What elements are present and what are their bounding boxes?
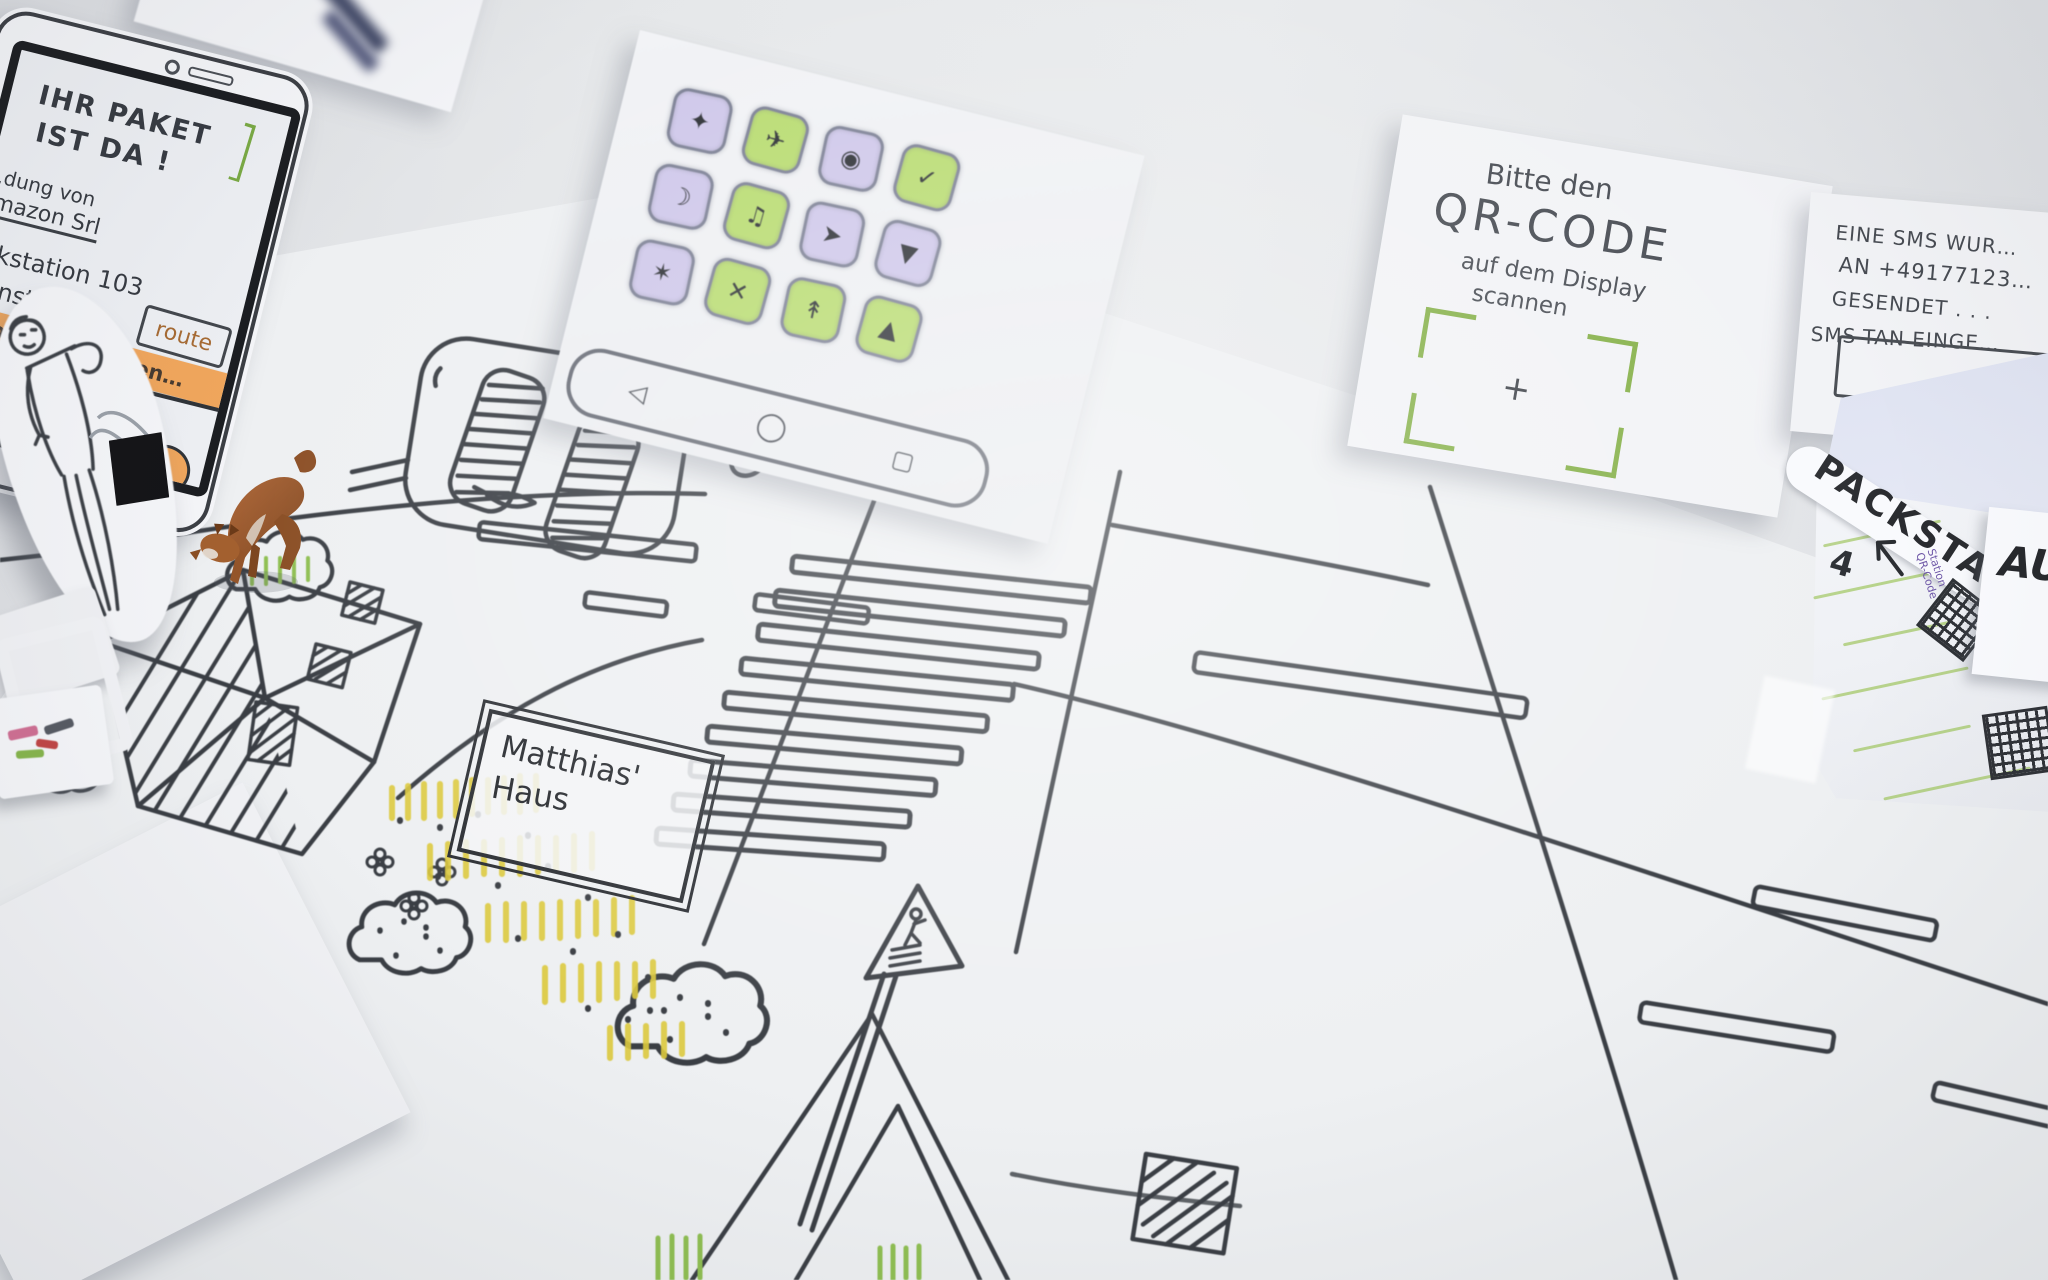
- recents-icon: ▢: [889, 444, 918, 477]
- app-icon: ▼: [871, 217, 945, 291]
- app-icon: ▲: [852, 292, 926, 366]
- app-icon-glyph: ✈: [762, 124, 789, 156]
- arrow-icon: [1859, 531, 1915, 584]
- app-icon-glyph: ✦: [687, 105, 712, 137]
- app-icon: ↟: [778, 275, 849, 346]
- app-icon-glyph: ◉: [838, 143, 864, 175]
- crosshair-mark: +: [1499, 367, 1534, 411]
- paper-basket: [0, 600, 122, 800]
- table-surface: ✦ ✈ ◉ ✓ ☽ ♫ ➤ ▼ ✶ ✕ ↟ ▲ ◁ ◯ ▢ IHR PAKET …: [0, 0, 2048, 1280]
- route-button-label: route: [153, 316, 216, 356]
- green-bracket-mark: ]: [219, 110, 266, 191]
- output-label-text: AU…: [1997, 536, 2048, 596]
- scan-frame-corner: [1565, 420, 1624, 479]
- pedestrian-sign-sketch: [800, 886, 962, 1230]
- app-icon: ✓: [890, 141, 964, 215]
- app-icon-glyph: ▲: [876, 313, 901, 345]
- qr-code-sketch: [1982, 706, 2048, 781]
- qr-instruction-paper: Bitte den QR-CODE auf dem Display scanne…: [1347, 114, 1832, 517]
- app-icon-glyph: ✶: [649, 257, 674, 289]
- scan-frame-corner: [1418, 307, 1477, 366]
- app-icon-glyph: ➤: [819, 219, 844, 251]
- scan-frame-corner: [1580, 334, 1639, 393]
- home-icon: ◯: [753, 406, 791, 446]
- packstation-paper-model: PACKSTATION 4 Station QR-Code AU…: [1812, 352, 2048, 812]
- junction-sketch: [692, 1014, 1240, 1280]
- flowerbed-sketch: [367, 849, 455, 919]
- app-icon: ➤: [797, 199, 868, 270]
- scan-frame-corner: [1403, 393, 1462, 452]
- app-icon: ✈: [738, 103, 812, 177]
- crosswalk-sketch: [656, 556, 1091, 860]
- toy-animal-figurine: [186, 430, 326, 600]
- app-icon-glyph: ✕: [724, 275, 751, 307]
- app-icon-glyph: ♫: [742, 199, 770, 232]
- app-icon: ✶: [626, 237, 697, 308]
- app-icon: ☽: [645, 161, 716, 232]
- app-icon-grid: ✦ ✈ ◉ ✓ ☽ ♫ ➤ ▼ ✶ ✕ ↟ ▲: [621, 85, 980, 388]
- back-icon: ◁: [625, 376, 650, 408]
- app-icon: ♫: [720, 179, 794, 253]
- app-icon: ◉: [816, 123, 887, 194]
- app-icon-glyph: ☽: [667, 181, 694, 213]
- qr-scan-frame: +: [1403, 307, 1638, 479]
- app-icon-glyph: ✓: [913, 162, 940, 194]
- app-icon-glyph: ▼: [895, 237, 920, 269]
- sms-line: GESENDET . . .: [1831, 286, 1993, 324]
- app-icon: ✦: [664, 86, 735, 157]
- app-icon: ✕: [701, 254, 775, 328]
- app-icon-glyph: ↟: [801, 294, 826, 326]
